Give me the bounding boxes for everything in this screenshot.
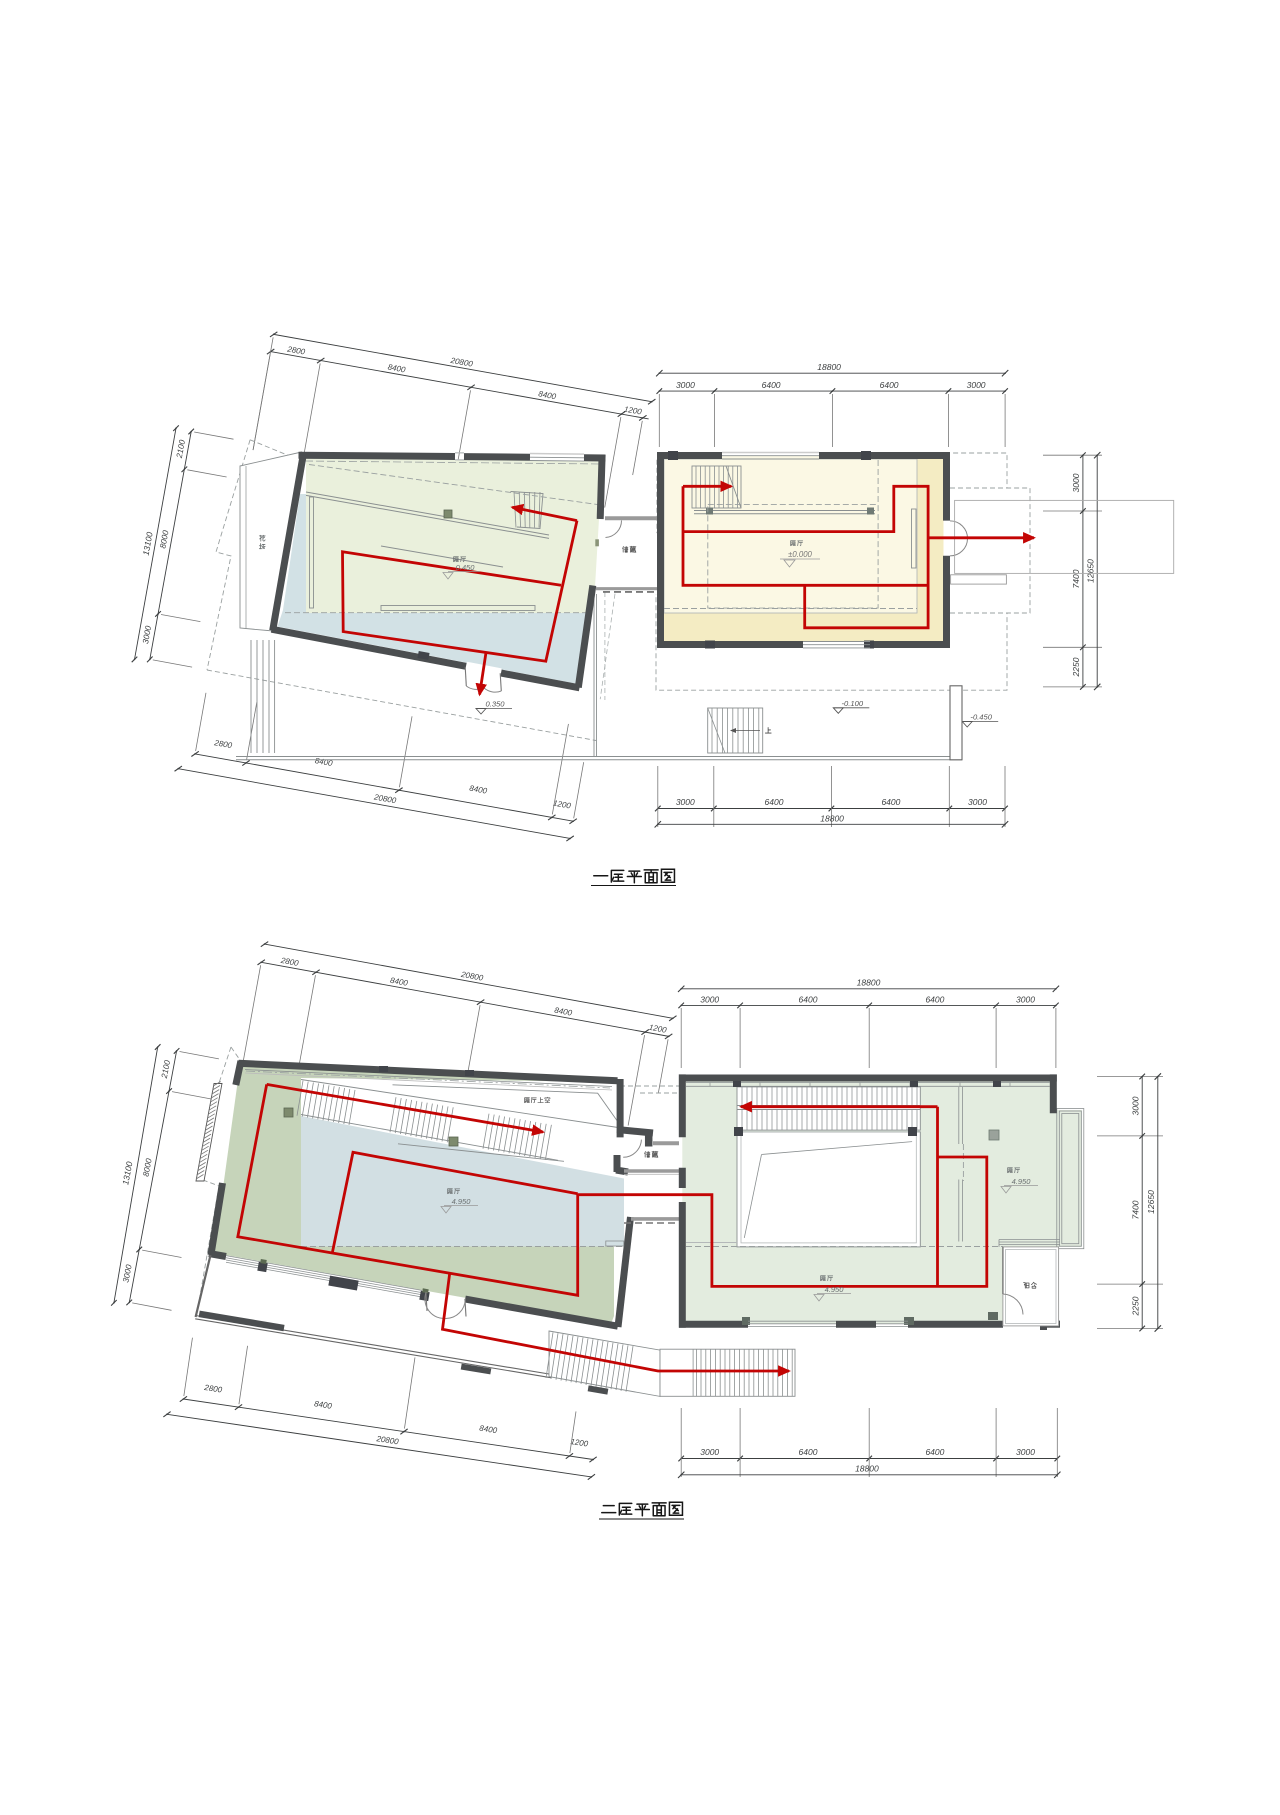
svg-text:6400: 6400 [881,797,900,807]
svg-text:-0.100: -0.100 [842,699,864,708]
svg-text:6400: 6400 [880,380,899,390]
svg-text:3000: 3000 [1071,473,1081,492]
svg-text:12650: 12650 [1086,559,1096,583]
svg-text:6400: 6400 [925,994,944,1004]
svg-text:7400: 7400 [1071,569,1081,588]
svg-text:6400: 6400 [762,380,781,390]
svg-text:18800: 18800 [820,814,844,824]
svg-text:4.950: 4.950 [825,1285,845,1294]
svg-text:6400: 6400 [765,797,784,807]
svg-text:3000: 3000 [676,380,695,390]
svg-text:2250: 2250 [1131,1296,1141,1316]
svg-text:18800: 18800 [855,1464,879,1474]
svg-text:-0.450: -0.450 [970,713,992,722]
svg-text:±0.000: ±0.000 [788,550,812,559]
svg-text:7400: 7400 [1131,1200,1141,1219]
svg-text:3000: 3000 [700,1447,719,1457]
svg-text:6400: 6400 [799,994,818,1004]
svg-text:3000: 3000 [1016,1447,1035,1457]
svg-text:18800: 18800 [857,978,881,988]
svg-text:2250: 2250 [1071,657,1081,677]
svg-text:18800: 18800 [817,362,841,372]
svg-text:6400: 6400 [925,1447,944,1457]
svg-text:4.950: 4.950 [1012,1177,1032,1186]
svg-text:0.350: 0.350 [485,700,505,709]
svg-text:12650: 12650 [1146,1190,1156,1214]
svg-text:3000: 3000 [1016,994,1035,1004]
svg-text:6400: 6400 [799,1447,818,1457]
svg-text:0.450: 0.450 [456,563,476,572]
svg-text:3000: 3000 [1131,1096,1141,1115]
svg-text:3000: 3000 [676,797,695,807]
svg-text:3000: 3000 [700,994,719,1004]
svg-text:3000: 3000 [968,797,987,807]
svg-text:3000: 3000 [967,380,986,390]
svg-text:4.950: 4.950 [452,1197,472,1206]
